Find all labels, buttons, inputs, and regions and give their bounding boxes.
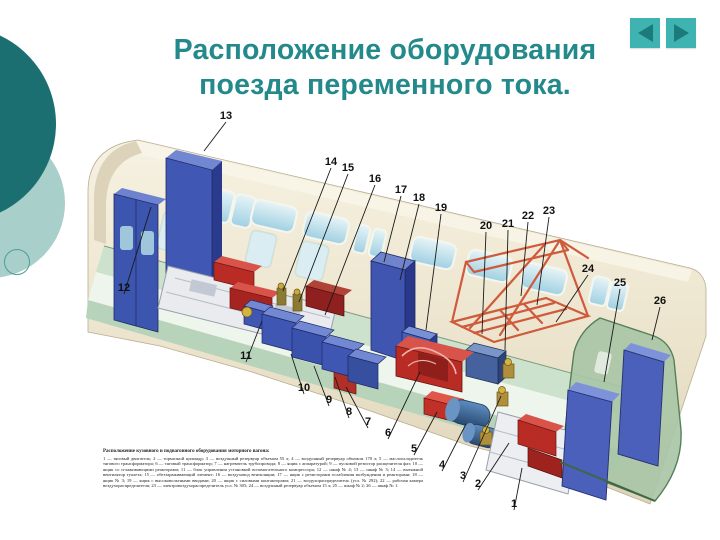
callout-label-4: 4 — [439, 459, 446, 471]
callout-label-21: 21 — [502, 218, 514, 230]
slide-background: Расположение оборудования поезда перемен… — [0, 0, 720, 540]
callout-label-26: 26 — [654, 295, 666, 307]
callout-label-9: 9 — [326, 394, 332, 406]
callout-label-23: 23 — [543, 205, 555, 217]
callout-label-15: 15 — [342, 162, 354, 174]
callout-label-3: 3 — [460, 470, 466, 482]
callout-label-22: 22 — [522, 210, 534, 222]
callout-label-2: 2 — [475, 478, 481, 490]
figure-caption: Расположение кузовного и подвагонного об… — [103, 449, 423, 488]
callout-label-25: 25 — [614, 277, 626, 289]
figure-caption-body: 1 — тяговый двигатель; 2 — тормозной цил… — [103, 456, 423, 488]
callout-label-19: 19 — [435, 202, 447, 214]
callout-label-8: 8 — [346, 406, 352, 418]
callout-label-1: 1 — [511, 498, 517, 510]
callout-label-10: 10 — [298, 382, 310, 394]
steel-box — [466, 343, 506, 384]
figure-caption-title: Расположение кузовного и подвагонного об… — [103, 449, 423, 455]
callout-label-17: 17 — [395, 184, 407, 196]
callout-label-13: 13 — [220, 110, 232, 122]
callout-label-18: 18 — [413, 192, 425, 204]
callout-label-14: 14 — [325, 156, 338, 168]
callout-line-13 — [204, 122, 226, 151]
callout-label-11: 11 — [240, 350, 252, 362]
callout-label-20: 20 — [480, 220, 492, 232]
callout-label-12: 12 — [118, 282, 130, 294]
callout-label-16: 16 — [369, 173, 381, 185]
callout-label-24: 24 — [582, 263, 595, 275]
callout-label-6: 6 — [385, 427, 391, 439]
callout-label-7: 7 — [365, 416, 371, 428]
